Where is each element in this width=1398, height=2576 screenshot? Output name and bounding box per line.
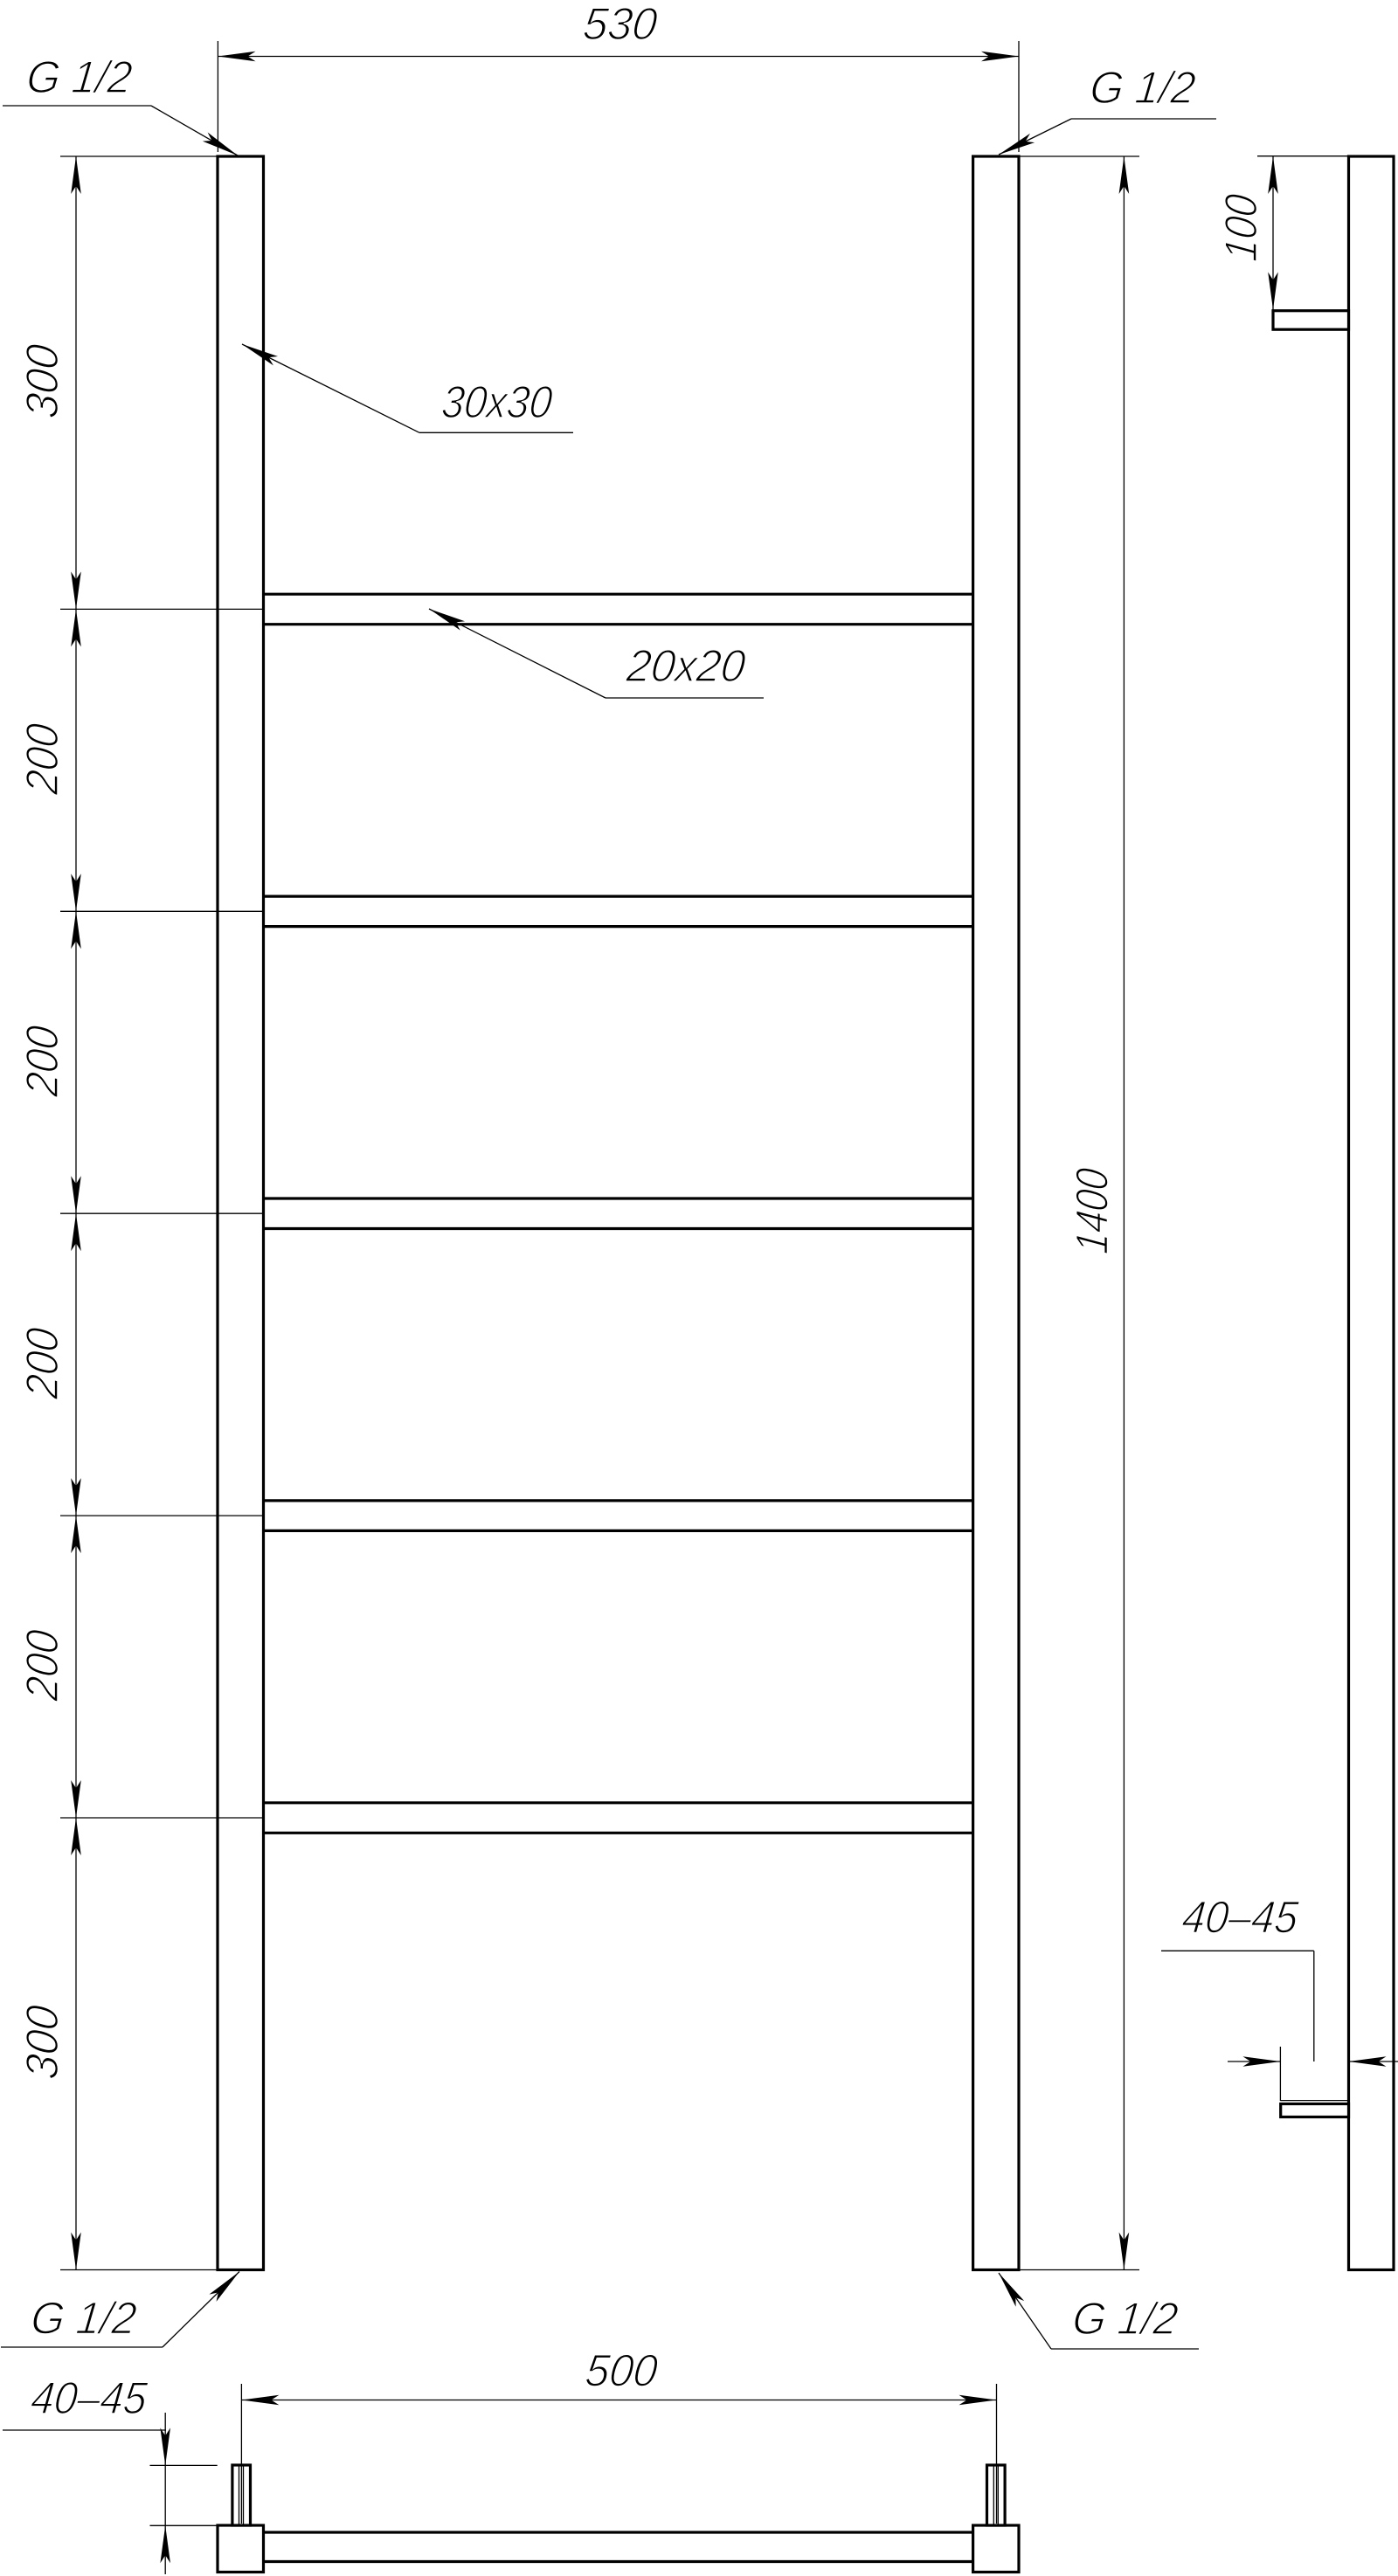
svg-text:G 1/2: G 1/2	[1088, 63, 1198, 114]
svg-text:G 1/2: G 1/2	[1070, 2294, 1180, 2345]
svg-text:300: 300	[17, 342, 68, 420]
svg-text:40–45: 40–45	[1180, 1893, 1301, 1944]
svg-text:500: 500	[583, 2346, 660, 2397]
svg-text:200: 200	[17, 1023, 68, 1099]
svg-text:G 1/2: G 1/2	[29, 2294, 139, 2345]
svg-text:40–45: 40–45	[29, 2373, 150, 2424]
svg-text:100: 100	[1216, 192, 1267, 264]
svg-text:530: 530	[581, 0, 660, 50]
svg-text:G 1/2: G 1/2	[24, 52, 135, 103]
svg-text:20x20: 20x20	[624, 641, 748, 692]
svg-text:1400: 1400	[1068, 1166, 1118, 1256]
svg-text:30x30: 30x30	[439, 377, 555, 428]
svg-text:200: 200	[17, 1627, 68, 1703]
svg-text:200: 200	[17, 1325, 68, 1401]
svg-text:200: 200	[17, 722, 68, 798]
svg-text:300: 300	[17, 2003, 68, 2082]
